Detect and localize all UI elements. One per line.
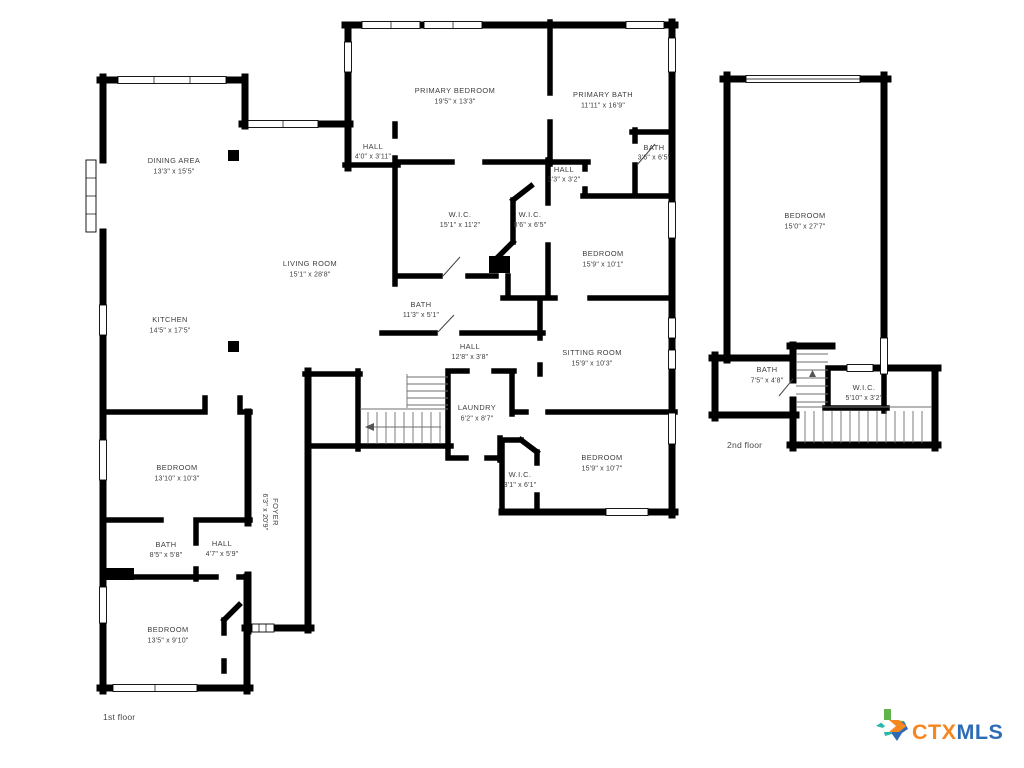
stair-direction-arrow bbox=[809, 370, 816, 377]
room-label-bath-2f: BATH7'5" x 4'8" bbox=[751, 365, 784, 385]
room-label-foyer: FOYER6'3" x 20'9" bbox=[261, 494, 280, 531]
wall-block bbox=[103, 568, 134, 580]
column-block bbox=[228, 341, 239, 352]
room-label-bath-small: BATH3'6" x 6'5" bbox=[638, 143, 671, 162]
texas-icon bbox=[876, 709, 908, 741]
room-label-bedroom-se: BEDROOM15'9" x 10'7" bbox=[581, 453, 622, 473]
stair-direction-arrow bbox=[365, 423, 374, 431]
front-door bbox=[252, 624, 274, 632]
room-label-bath-w: BATH8'5" x 5'8" bbox=[150, 540, 183, 559]
room-label-wic-primary: W.I.C.15'1" x 11'2" bbox=[440, 210, 481, 229]
room-label-primary-bath: PRIMARY BATH11'11" x 16'9" bbox=[573, 90, 633, 110]
room-label-hall-center: HALL12'8" x 3'8" bbox=[452, 342, 489, 361]
first-floor-interior-walls bbox=[103, 22, 675, 671]
room-label-wic-2f: W.I.C.5'10" x 3'2" bbox=[846, 383, 883, 402]
ctxmls-logo-text: CTXMLS bbox=[912, 720, 1003, 744]
room-label-dining-area: DINING AREA13'3" x 15'5" bbox=[148, 156, 201, 176]
room-label-hall-small: HALL3'3" x 3'2" bbox=[548, 165, 581, 184]
first-floor-label: 1st floor bbox=[103, 712, 135, 722]
floor-plan-page: PRIMARY BEDROOM19'5" x 13'3" PRIMARY BAT… bbox=[0, 0, 1024, 768]
room-label-hall-primary: HALL4'0" x 3'11" bbox=[355, 142, 392, 161]
room-label-bedroom-sw: BEDROOM13'5" x 9'10" bbox=[147, 625, 188, 645]
room-label-bedroom-ne: BEDROOM15'9" x 10'1" bbox=[582, 249, 623, 269]
room-label-laundry: LAUNDRY6'2" x 8'7" bbox=[458, 403, 496, 423]
room-label-bedroom-w: BEDROOM13'10" x 10'3" bbox=[154, 463, 199, 483]
room-labels: PRIMARY BEDROOM19'5" x 13'3" PRIMARY BAT… bbox=[147, 86, 882, 645]
chimney-block bbox=[489, 256, 510, 273]
second-floor-walls bbox=[712, 75, 938, 448]
room-label-primary-bedroom: PRIMARY BEDROOM19'5" x 13'3" bbox=[415, 86, 495, 106]
room-label-bath-center: BATH11'3" x 5'1" bbox=[403, 300, 440, 319]
room-label-living-room: LIVING ROOM15'1" x 28'8" bbox=[283, 259, 337, 279]
room-label-kitchen: KITCHEN14'5" x 17'5" bbox=[150, 315, 191, 335]
room-label-wic-mid: W.I.C.8'6" x 6'5" bbox=[514, 210, 547, 229]
column-block bbox=[228, 150, 239, 161]
ctxmls-logo: CTXMLS bbox=[876, 709, 1003, 744]
floor-plan-svg: PRIMARY BEDROOM19'5" x 13'3" PRIMARY BAT… bbox=[0, 0, 1024, 768]
room-label-hall-w: HALL4'7" x 5'9" bbox=[206, 539, 239, 558]
room-label-bedroom-2f: BEDROOM15'0" x 27'7" bbox=[784, 211, 825, 231]
room-label-sitting-room: SITTING ROOM15'9" x 10'3" bbox=[562, 348, 622, 368]
staircase-first-floor bbox=[360, 374, 448, 444]
second-floor-label: 2nd floor bbox=[727, 440, 762, 450]
room-label-wic-small: W.I.C.3'1" x 6'1" bbox=[504, 470, 537, 489]
